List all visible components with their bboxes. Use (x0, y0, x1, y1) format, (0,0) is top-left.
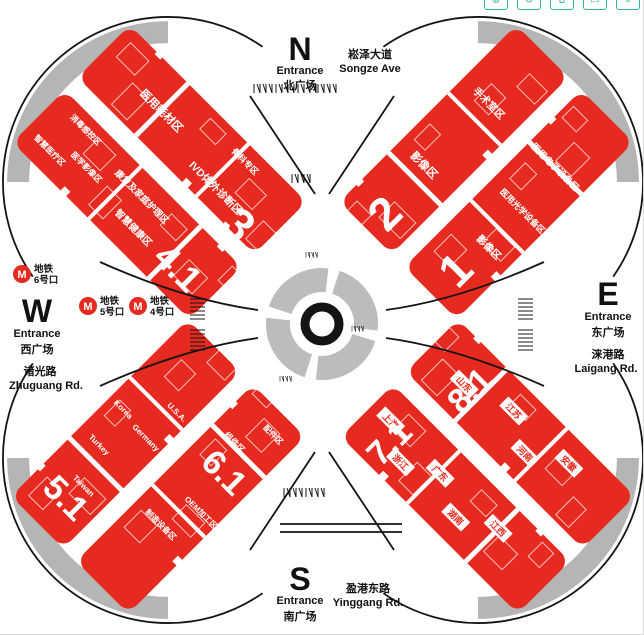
road-laigang-cn: 涞港路 (592, 347, 626, 361)
svg-text:地铁: 地铁 (150, 295, 170, 307)
svg-text:M: M (83, 301, 92, 313)
frame-icon: ▭ (590, 0, 599, 6)
metro-exit-5: M 地铁 5号口 (79, 295, 124, 318)
refresh-icon: ↻ (525, 0, 533, 6)
north-letter: N (288, 31, 311, 67)
north-plaza-label: 北广场 (284, 78, 317, 92)
east-plaza-label: 东广场 (592, 325, 625, 339)
gear-icon: ✳ (624, 0, 632, 6)
zoom-icon: ⊕ (492, 0, 500, 6)
road-zhuguang-cn: 诸光路 (24, 364, 58, 378)
west-plaza-label: 西广场 (21, 342, 54, 356)
road-songze-en: Songze Ave (339, 63, 401, 75)
venue-map: ⊕ ↻ ⌂ ▭ ✳ (0, 0, 644, 635)
north-entrance-label: Entrance (276, 65, 323, 77)
settings-tool-button[interactable]: ✳ (616, 0, 640, 10)
central-hub (267, 269, 378, 380)
south-letter: S (289, 561, 310, 597)
road-zhuguang-en: Zhuguang Rd. (9, 380, 83, 392)
home-icon: ⌂ (559, 0, 565, 6)
svg-text:M: M (17, 269, 26, 281)
east-gate-structure (518, 299, 533, 319)
svg-text:地铁: 地铁 (34, 263, 54, 275)
svg-text:4号口: 4号口 (150, 307, 174, 318)
west-letter: W (22, 293, 53, 329)
south-entrance-label: Entrance (276, 595, 323, 607)
zoom-tool-button[interactable]: ⊕ (484, 0, 508, 10)
road-laigang-en: Laigang Rd. (575, 363, 638, 375)
south-plaza-label: 南广场 (284, 609, 317, 623)
svg-text:地铁: 地铁 (100, 295, 120, 307)
metro-exit-6: M 地铁 6号口 (13, 263, 58, 286)
refresh-tool-button[interactable]: ↻ (517, 0, 541, 10)
hub-o-ring (305, 307, 339, 341)
floor-plan-svg: 骨科专区 医用耗材区 IVD体外诊断区 3 消毒感控区 医学影像区 智慧医疗区 … (0, 0, 644, 635)
south-walkway (280, 524, 402, 532)
entrance-east: E Entrance 东广场 涞港路 Laigang Rd. (575, 276, 638, 375)
east-entrance-label: Entrance (584, 311, 631, 323)
west-entrance-label: Entrance (13, 328, 60, 340)
home-tool-button[interactable]: ⌂ (550, 0, 574, 10)
svg-text:6号口: 6号口 (34, 275, 58, 286)
road-songze-cn: 崧泽大道 (348, 47, 392, 61)
frame-tool-button[interactable]: ▭ (583, 0, 607, 10)
image-viewer-toolbar: ⊕ ↻ ⌂ ▭ ✳ (484, 0, 640, 10)
entrance-west: W Entrance 西广场 诸光路 Zhuguang Rd. (9, 293, 83, 392)
svg-text:M: M (133, 301, 142, 313)
entrance-south: S Entrance 南广场 盈港东路 Yinggang Rd. (276, 561, 403, 623)
road-yinggang-en: Yinggang Rd. (333, 597, 403, 609)
east-letter: E (597, 276, 618, 312)
metro-exit-4: M 地铁 4号口 (129, 295, 174, 318)
road-yinggang-cn: 盈港东路 (345, 581, 391, 595)
entrance-north: N Entrance 北广场 崧泽大道 Songze Ave (276, 31, 400, 92)
svg-text:5号口: 5号口 (100, 307, 124, 318)
